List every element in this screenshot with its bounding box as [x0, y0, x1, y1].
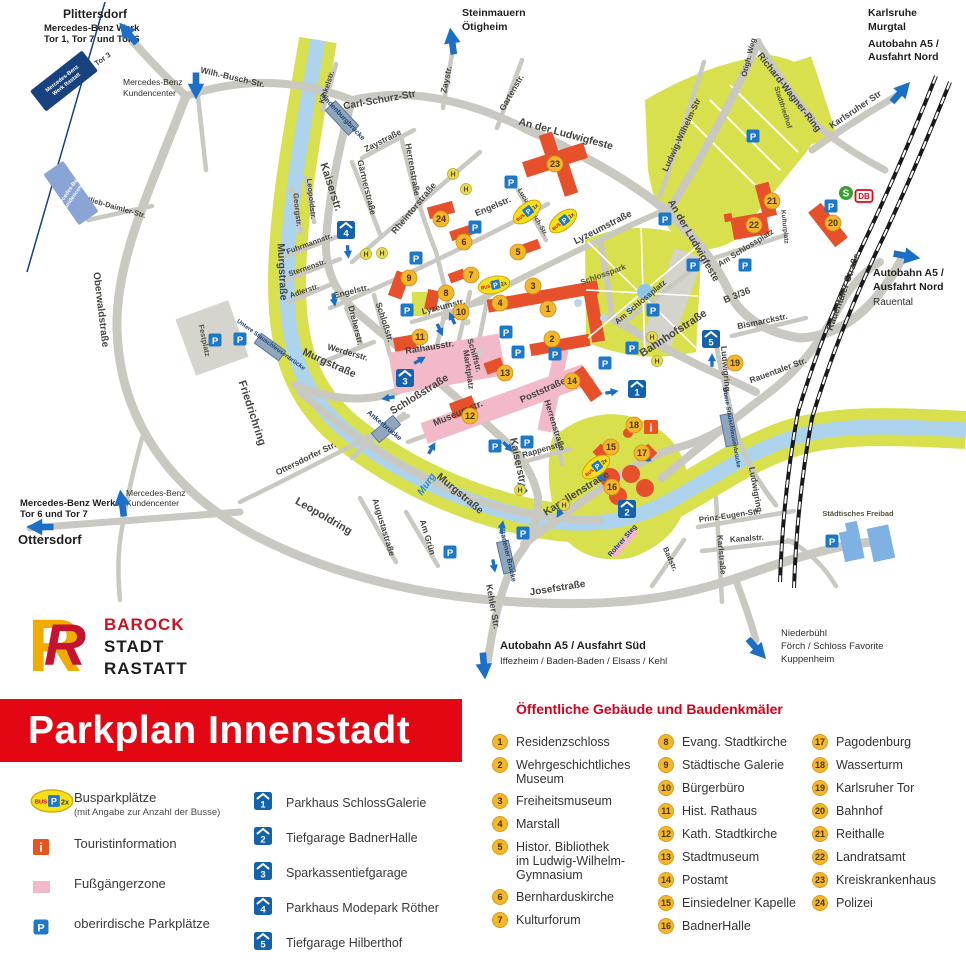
- poi-marker-6: 6: [456, 234, 472, 250]
- svg-text:P: P: [503, 328, 510, 339]
- zone-icon: [33, 881, 50, 893]
- building-number-badge: 7: [492, 912, 508, 928]
- building-legend-label: Bahnhof: [836, 803, 883, 818]
- garage-legend-item: 2Tiefgarage BadnerHalle: [252, 825, 462, 850]
- poi-marker-8: 8: [438, 285, 454, 301]
- svg-text:1: 1: [634, 388, 640, 399]
- mercedes-box: Mercedes-BenzWerk Rastatt: [30, 50, 98, 111]
- svg-text:DB: DB: [858, 192, 870, 201]
- garage-shield-icon: 5: [254, 932, 272, 951]
- tourist-info-icon: i: [644, 420, 658, 435]
- legend-item: Poberirdische Parkplätze: [30, 914, 250, 940]
- svg-text:3: 3: [402, 377, 407, 388]
- svg-text:i: i: [649, 423, 652, 435]
- building-legend-label: BadnerHalle: [682, 918, 751, 933]
- svg-text:H: H: [379, 251, 384, 258]
- svg-text:8: 8: [443, 288, 448, 298]
- poi-marker-11: 11: [412, 329, 428, 345]
- svg-text:H: H: [649, 335, 654, 342]
- street-label: Städtisches Freibad: [822, 509, 894, 518]
- svg-text:2x: 2x: [61, 798, 69, 806]
- building-legend-label: Histor. Bibliothekim Ludwig-Wilhelm-Gymn…: [516, 839, 625, 882]
- street-label: Schloßstr.: [374, 301, 396, 343]
- destination-label: Ausfahrt Nord: [868, 51, 939, 63]
- svg-text:H: H: [450, 172, 455, 179]
- svg-text:11: 11: [415, 332, 425, 342]
- svg-text:3: 3: [260, 870, 265, 881]
- svg-text:16: 16: [607, 482, 617, 492]
- street-label: Gärtnerstraße: [355, 159, 378, 216]
- garage-shield-icon: 2: [254, 827, 272, 846]
- garage-shield-icon: 1: [254, 792, 272, 811]
- building-legend-item: 16BadnerHalle: [658, 918, 810, 934]
- building-number-badge: 16: [658, 918, 674, 934]
- building-legend-label: Kulturforum: [516, 912, 581, 927]
- svg-text:P: P: [742, 261, 749, 272]
- poi-marker-16: 16: [604, 479, 620, 495]
- poi-marker-12: 12: [462, 408, 478, 424]
- building-number-badge: 2: [492, 757, 508, 773]
- building-legend-label: Evang. Stadtkirche: [682, 734, 787, 749]
- building-number-badge: 20: [812, 803, 828, 819]
- poi-marker-5: 5: [510, 244, 526, 260]
- destination-label: Mercedes-Benz Werk: [20, 498, 116, 509]
- building-number-badge: 12: [658, 826, 674, 842]
- destination-label: Ötigheim: [462, 20, 508, 33]
- parking-icon: P: [549, 348, 562, 361]
- parking-icon: P: [687, 259, 700, 272]
- poi-marker-18: 18: [626, 417, 642, 433]
- svg-text:P: P: [404, 306, 411, 317]
- garage-shield-1: 1: [628, 380, 646, 399]
- poi-marker-2: 2: [544, 331, 560, 347]
- svg-text:21: 21: [767, 196, 777, 206]
- building-legend-item: 5Histor. Bibliothekim Ludwig-Wilhelm-Gym…: [492, 839, 650, 882]
- svg-text:H: H: [363, 252, 368, 259]
- destination-label: Tor 6 und Tor 7: [20, 509, 88, 520]
- svg-text:P: P: [690, 261, 697, 272]
- street-label: Herrenstraße: [403, 143, 422, 197]
- parking-icon: P: [401, 304, 414, 317]
- destination-label: Autobahn A5 /: [868, 38, 939, 50]
- svg-text:2: 2: [624, 508, 629, 519]
- legend-item-label: Touristinformation: [74, 834, 177, 851]
- parking-icon: P: [209, 334, 222, 347]
- svg-text:20: 20: [828, 218, 838, 228]
- svg-text:P: P: [524, 438, 531, 449]
- svg-text:17: 17: [637, 448, 647, 458]
- parking-icon: P: [410, 252, 423, 265]
- logo-r-red: R: [44, 613, 86, 678]
- building-number-badge: 13: [658, 849, 674, 865]
- poi-marker-7: 7: [463, 267, 479, 283]
- parking-icon: P: [521, 436, 534, 449]
- building-number-badge: 9: [658, 757, 674, 773]
- building-legend-label: Freiheitsmuseum: [516, 793, 612, 808]
- parking-icon: P: [647, 304, 660, 317]
- buildings-legend-col1: 1Residenzschloss2WehrgeschichtlichesMuse…: [492, 734, 650, 935]
- parking-icon: P: [739, 259, 752, 272]
- svg-text:P: P: [552, 350, 559, 361]
- parking-icon: P: [512, 346, 525, 359]
- destination-label: Karlsruhe: [868, 7, 917, 19]
- building-number-badge: 14: [658, 872, 674, 888]
- building-legend-item: 4Marstall: [492, 816, 650, 832]
- garage-legend-item: 4Parkhaus Modepark Röther: [252, 895, 462, 920]
- building-legend-label: Kath. Stadtkirche: [682, 826, 777, 841]
- svg-text:2: 2: [260, 835, 265, 846]
- building-number-badge: 24: [812, 895, 828, 911]
- svg-text:12: 12: [465, 411, 475, 421]
- street-label: Friedrichring: [236, 379, 268, 447]
- destination-label: Steinmauern: [462, 7, 526, 19]
- poi-marker-13: 13: [497, 365, 513, 381]
- svg-text:9: 9: [406, 273, 411, 283]
- svg-text:1: 1: [260, 800, 266, 811]
- poi-marker-1: 1: [540, 301, 556, 317]
- svg-text:5: 5: [260, 940, 266, 951]
- city-map: Wilh.-Busch-Str.Carl-Schurz-StrKinkelstr…: [0, 0, 966, 694]
- building-number-badge: 17: [812, 734, 828, 750]
- svg-text:6: 6: [461, 237, 466, 247]
- svg-text:P: P: [37, 922, 44, 934]
- title-banner: Parkplan Innenstadt: [0, 699, 462, 762]
- poi-marker-15: 15: [603, 439, 619, 455]
- svg-text:P: P: [650, 306, 657, 317]
- destination-label: Mercedes-Benz: [126, 488, 186, 498]
- svg-text:H: H: [654, 359, 659, 366]
- bus-stop-icon: H: [361, 249, 372, 260]
- building-legend-item: 13Stadtmuseum: [658, 849, 810, 865]
- building-number-badge: 4: [492, 816, 508, 832]
- building-legend-label: Bernharduskirche: [516, 889, 614, 904]
- building-number-badge: 6: [492, 889, 508, 905]
- building-legend-item: 3Freiheitsmuseum: [492, 793, 650, 809]
- building-number-badge: 8: [658, 734, 674, 750]
- bus-stop-icon: H: [377, 248, 388, 259]
- parking-icon: P: [626, 342, 639, 355]
- building-legend-item: 1Residenzschloss: [492, 734, 650, 750]
- bus-stop-icon: H: [515, 485, 526, 496]
- barock-stadt-rastatt-logo: R R BAROCK STADT RASTATT: [26, 597, 196, 692]
- direction-arrow-icon: [442, 26, 462, 55]
- building-legend-item: 9Städtische Galerie: [658, 757, 810, 773]
- svg-text:P: P: [602, 359, 609, 370]
- building-number-badge: 10: [658, 780, 674, 796]
- parking-icon: P: [826, 535, 839, 548]
- legend-item-sublabel: (mit Angabe zur Anzahl der Busse): [74, 805, 220, 820]
- oneway-arrow-icon: [708, 353, 716, 367]
- parking-icon: P: [517, 527, 530, 540]
- svg-text:P: P: [829, 537, 836, 548]
- bus-stop-icon: H: [448, 169, 459, 180]
- street-label: Zaystr.: [438, 65, 453, 94]
- svg-text:BUS: BUS: [35, 799, 47, 805]
- bus-parking-oval: BUSP1x: [545, 204, 581, 237]
- poi-marker-10: 10: [453, 304, 469, 320]
- legend-item-label: Fußgängerzone: [74, 874, 166, 891]
- info-icon: i: [33, 839, 49, 855]
- building-number-badge: 18: [812, 757, 828, 773]
- svg-text:23: 23: [550, 159, 560, 169]
- building-legend-label: Kreiskrankenhaus: [836, 872, 936, 887]
- destination-label: Ottersdorf: [18, 532, 82, 547]
- garage-shield-icon: 4: [254, 897, 272, 916]
- building-legend-item: 7Kulturforum: [492, 912, 650, 928]
- parking-icon: P: [505, 176, 518, 189]
- building-number-badge: 11: [658, 803, 674, 819]
- svg-text:P: P: [492, 442, 499, 453]
- legend-item-label: Busparkplätze(mit Angabe zur Anzahl der …: [74, 788, 220, 820]
- building-number-badge: 19: [812, 780, 828, 796]
- building-legend-label: Einsiedelner Kapelle: [682, 895, 796, 910]
- destination-label: Förch / Schloss Favorite: [781, 641, 883, 652]
- poi-marker-3: 3: [525, 278, 541, 294]
- legend-item: Fußgängerzone: [30, 874, 250, 900]
- svg-text:P: P: [447, 548, 454, 559]
- building-legend-item: 23Kreiskrankenhaus: [812, 872, 962, 888]
- logo-line2: STADT: [104, 637, 164, 656]
- destination-label: Ausfahrt Nord: [873, 281, 944, 293]
- destination-label: Mercedes-Benz: [123, 77, 183, 87]
- parking-icon: P: [747, 130, 760, 143]
- parking-icon: P: [659, 213, 672, 226]
- svg-text:3: 3: [530, 281, 535, 291]
- building-legend-item: 17Pagodenburg: [812, 734, 962, 750]
- building-legend-label: Wasserturm: [836, 757, 903, 772]
- svg-text:P: P: [212, 336, 219, 347]
- garage-shield-2: 2: [618, 500, 636, 519]
- destination-label: Autobahn A5 / Ausfahrt Süd: [500, 640, 646, 652]
- svg-text:5: 5: [515, 247, 520, 257]
- svg-text:22: 22: [749, 220, 759, 230]
- svg-text:18: 18: [629, 420, 639, 430]
- garage-shield-4: 4: [337, 221, 355, 240]
- garage-legend-item: 1Parkhaus SchlossGalerie: [252, 790, 462, 815]
- garage-shield-3: 3: [396, 369, 414, 388]
- poi-marker-21: 21: [764, 193, 780, 209]
- building-legend-label: WehrgeschichtlichesMuseum: [516, 757, 630, 786]
- garage-legend-item: 3Sparkassentiefgarage: [252, 860, 462, 885]
- street-label: Josefstraße: [529, 579, 587, 599]
- svg-text:P: P: [237, 335, 244, 346]
- garage-legend-item: 5Tiefgarage Hilberthof: [252, 930, 462, 955]
- building-legend-item: 18Wasserturm: [812, 757, 962, 773]
- poi-marker-9: 9: [401, 270, 417, 286]
- poi-marker-4: 4: [492, 295, 508, 311]
- garage-legend-label: Sparkassentiefgarage: [286, 866, 408, 880]
- svg-text:7: 7: [468, 270, 473, 280]
- building-legend-item: 12Kath. Stadtkirche: [658, 826, 810, 842]
- destination-label: Kundencenter: [123, 88, 176, 98]
- s-bahn-icon: S: [839, 186, 853, 200]
- legend-symbols: BUSP2xBusparkplätze(mit Angabe zur Anzah…: [30, 788, 250, 954]
- building-legend-label: Marstall: [516, 816, 560, 831]
- building-legend-label: Bürgerbüro: [682, 780, 745, 795]
- garage-legend-label: Parkhaus Modepark Röther: [286, 901, 439, 915]
- page-title: Parkplan Innenstadt: [0, 709, 410, 753]
- parking-icon: P: [444, 546, 457, 559]
- building-number-badge: 3: [492, 793, 508, 809]
- garage-legend-label: Parkhaus SchlossGalerie: [286, 796, 426, 810]
- destination-label: Kuppenheim: [781, 654, 834, 665]
- poi-marker-20: 20: [825, 215, 841, 231]
- street-label: Tor 3: [93, 50, 113, 68]
- destination-label: Niederbühl: [781, 628, 827, 639]
- parking-icon: P: [489, 440, 502, 453]
- building-legend-item: 22Landratsamt: [812, 849, 962, 865]
- busP-icon: BUSP2x: [31, 790, 73, 812]
- building-legend-item: 20Bahnhof: [812, 803, 962, 819]
- street-label: Karlstraße: [715, 535, 727, 576]
- svg-text:24: 24: [436, 214, 446, 224]
- building-legend-item: 10Bürgerbüro: [658, 780, 810, 796]
- svg-text:P: P: [51, 797, 57, 807]
- svg-text:P: P: [472, 223, 479, 234]
- building-number-badge: 15: [658, 895, 674, 911]
- building-legend-item: 8Evang. Stadtkirche: [658, 734, 810, 750]
- garage-shield-5: 5: [702, 330, 720, 349]
- garage-legend-label: Tiefgarage BadnerHalle: [286, 831, 418, 845]
- legend-item: BUSP2xBusparkplätze(mit Angabe zur Anzah…: [30, 788, 250, 820]
- building-legend-item: 24Polizei: [812, 895, 962, 911]
- svg-text:4: 4: [497, 298, 502, 308]
- destination-label: Autobahn A5 /: [873, 267, 944, 279]
- destination-label: Iffezheim / Baden-Baden / Elsass / Kehl: [500, 656, 667, 667]
- building-legend-label: Postamt: [682, 872, 728, 887]
- svg-text:2: 2: [549, 334, 554, 344]
- oneway-arrow-icon: [343, 245, 352, 259]
- bus-stop-icon: H: [652, 356, 663, 367]
- bus-parking-oval: BUSP2x: [477, 273, 512, 296]
- svg-text:H: H: [517, 488, 522, 495]
- poi-marker-23: 23: [547, 156, 563, 172]
- svg-text:1: 1: [545, 304, 550, 314]
- svg-text:P: P: [508, 178, 515, 189]
- bus-stop-icon: H: [647, 332, 658, 343]
- logo-line1: BAROCK: [104, 615, 185, 634]
- oneway-arrow-icon: [489, 559, 499, 574]
- street-label: Gartenstr.: [497, 73, 526, 113]
- garage-legend-label: Tiefgarage Hilberthof: [286, 936, 402, 950]
- mercedes-box: Mercedes-BenzKundencenter: [43, 161, 98, 226]
- oneway-arrow-icon: [425, 440, 439, 456]
- parking-icon: P: [234, 333, 247, 346]
- svg-text:19: 19: [730, 358, 740, 368]
- svg-text:15: 15: [606, 442, 616, 452]
- building-legend-label: Landratsamt: [836, 849, 905, 864]
- buildings-legend-col3: 17Pagodenburg18Wasserturm19Karlsruher To…: [812, 734, 962, 918]
- destination-label: Plittersdorf: [63, 7, 128, 21]
- building-legend-item: 21Reithalle: [812, 826, 962, 842]
- building-legend-label: Reithalle: [836, 826, 885, 841]
- building-legend-item: 14Postamt: [658, 872, 810, 888]
- building-legend-item: 11Hist. Rathaus: [658, 803, 810, 819]
- parking-icon: P: [469, 221, 482, 234]
- parking-icon: P: [825, 200, 838, 213]
- poi-marker-22: 22: [746, 217, 762, 233]
- building-legend-label: Polizei: [836, 895, 873, 910]
- legend-item: iTouristinformation: [30, 834, 250, 860]
- svg-text:10: 10: [456, 307, 466, 317]
- building-number-badge: 1: [492, 734, 508, 750]
- legend-garages: 1Parkhaus SchlossGalerie2Tiefgarage Badn…: [252, 790, 462, 965]
- svg-text:4: 4: [260, 905, 266, 916]
- garage-shield-icon: 3: [254, 862, 272, 881]
- building-legend-item: 6Bernharduskirche: [492, 889, 650, 905]
- destination-label: Murgtal: [868, 21, 906, 33]
- svg-text:13: 13: [500, 368, 510, 378]
- street-label: Dreherstr.: [346, 305, 365, 346]
- svg-text:4: 4: [343, 229, 349, 240]
- parking-icon: P: [500, 326, 513, 339]
- svg-text:S: S: [843, 189, 850, 200]
- legend-item-label: oberirdische Parkplätze: [74, 914, 210, 931]
- svg-text:P: P: [515, 348, 522, 359]
- svg-text:P: P: [828, 202, 835, 213]
- poi-marker-19: 19: [727, 355, 743, 371]
- svg-text:14: 14: [567, 376, 577, 386]
- svg-text:H: H: [463, 187, 468, 194]
- destination-label: Kundencenter: [126, 498, 179, 508]
- buildings-legend-col2: 8Evang. Stadtkirche9Städtische Galerie10…: [658, 734, 810, 941]
- poi-marker-24: 24: [433, 211, 449, 227]
- svg-text:i: i: [39, 841, 43, 855]
- building-number-badge: 23: [812, 872, 828, 888]
- building-legend-item: 15Einsiedelner Kapelle: [658, 895, 810, 911]
- svg-text:P: P: [520, 529, 527, 540]
- svg-text:5: 5: [708, 338, 714, 349]
- poi-marker-14: 14: [564, 373, 580, 389]
- svg-text:P: P: [413, 254, 420, 265]
- street-label: Engelstr.: [473, 194, 512, 218]
- building-legend-label: Stadtmuseum: [682, 849, 759, 864]
- street-label: Kulturplatz: [779, 210, 790, 245]
- building-number-badge: 21: [812, 826, 828, 842]
- poi-marker-17: 17: [634, 445, 650, 461]
- building-legend-item: 19Karlsruher Tor: [812, 780, 962, 796]
- street-label: Kaiserstr.: [317, 161, 344, 212]
- bus-stop-icon: H: [559, 500, 570, 511]
- buildings-legend-title: Öffentliche Gebäude und Baudenkmäler: [516, 701, 783, 717]
- logo-line3: RASTATT: [104, 659, 188, 678]
- street-label: Oberwaldstraße: [90, 272, 110, 349]
- db-logo-icon: DB: [856, 190, 873, 202]
- building-legend-label: Städtische Galerie: [682, 757, 784, 772]
- svg-text:H: H: [561, 503, 566, 510]
- building-legend-label: Karlsruher Tor: [836, 780, 914, 795]
- building-legend-label: Hist. Rathaus: [682, 803, 757, 818]
- destination-label: Rauental: [873, 297, 913, 308]
- svg-text:P: P: [750, 132, 757, 143]
- building-number-badge: 22: [812, 849, 828, 865]
- building-number-badge: 5: [492, 839, 508, 855]
- building-legend-label: Residenzschloss: [516, 734, 610, 749]
- parking-icon: P: [599, 357, 612, 370]
- svg-text:P: P: [662, 215, 669, 226]
- p-icon: P: [34, 920, 49, 935]
- street-label: Leopoldring: [293, 495, 354, 537]
- building-legend-item: 2WehrgeschichtlichesMuseum: [492, 757, 650, 786]
- oneway-arrow-icon: [605, 387, 620, 397]
- parkplan-page: { "banner_title": "Parkplan Innenstadt",…: [0, 0, 966, 966]
- building-legend-label: Pagodenburg: [836, 734, 911, 749]
- svg-text:P: P: [629, 344, 636, 355]
- bus-stop-icon: H: [461, 184, 472, 195]
